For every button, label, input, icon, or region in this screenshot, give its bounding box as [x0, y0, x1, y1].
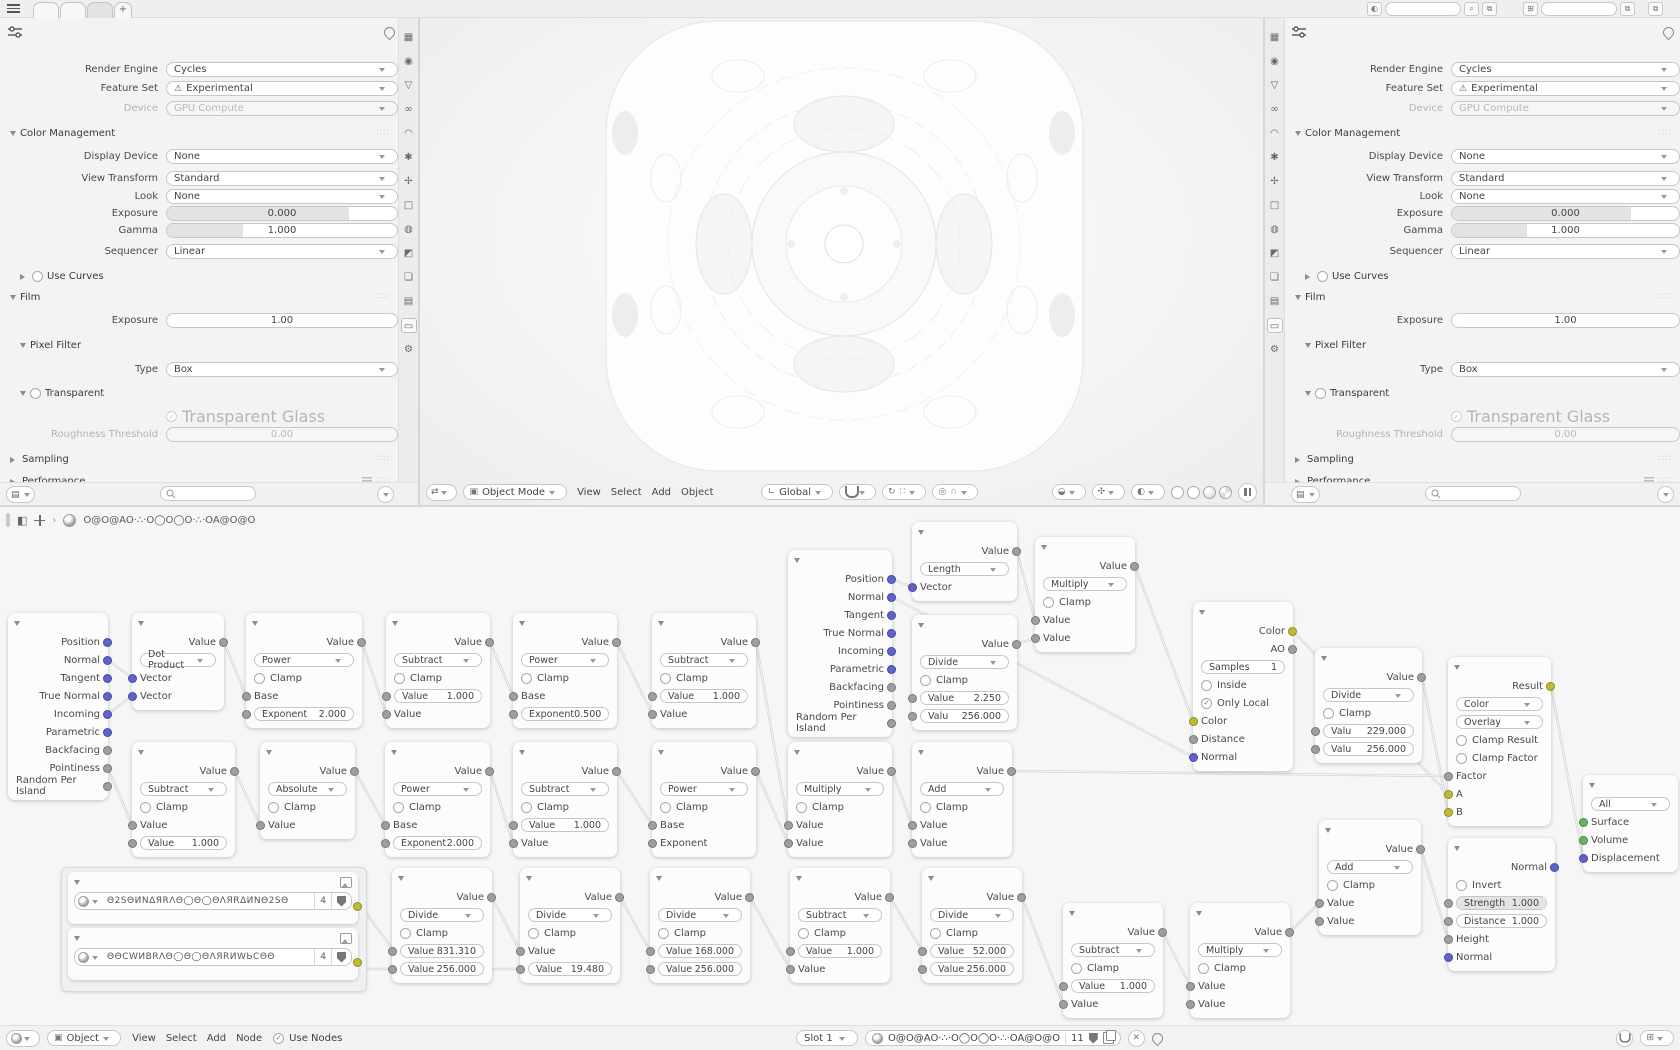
node-vector-math-length[interactable]: ValueLengthVector [912, 522, 1017, 601]
number-field[interactable]: Value256.000 [930, 962, 1014, 976]
socket[interactable] [1550, 863, 1559, 872]
dropdown-view-transform[interactable]: Standard [166, 171, 398, 186]
collapse-icon[interactable] [138, 750, 144, 758]
node-math-divide-3[interactable]: ValueDivideClampValue831.310Value256.000 [392, 868, 492, 983]
orientation-dropdown[interactable]: ∟Global [761, 484, 833, 500]
node-math-add-2[interactable]: ValueAddClampValueValue [1319, 820, 1421, 935]
checkbox-circle[interactable] [660, 673, 671, 684]
select-box-icon[interactable]: ◧ [17, 514, 27, 527]
value-field-exposure[interactable]: 0.000 [1451, 206, 1680, 221]
grid-small-icon[interactable]: ⊞ [1523, 2, 1538, 16]
socket[interactable] [1158, 928, 1167, 937]
socket[interactable] [103, 710, 112, 719]
transform-pivot-group[interactable]: ↻∷ [882, 484, 926, 500]
tab-modifiers[interactable]: ✢ [401, 174, 417, 189]
shader-node-editor[interactable]: PositionNormalTangentTrue NormalIncoming… [0, 507, 1680, 1050]
socket[interactable] [1416, 845, 1425, 854]
copy-small-icon-2[interactable]: ⧉ [1620, 2, 1635, 16]
socket[interactable] [786, 965, 795, 974]
socket[interactable] [382, 710, 391, 719]
tab-tool[interactable]: ⚙ [401, 342, 417, 357]
tab-render[interactable]: ▭ [401, 318, 417, 333]
section-header-film[interactable]: Film [1295, 292, 1325, 303]
collapse-icon[interactable] [1041, 545, 1047, 553]
socket[interactable] [887, 665, 896, 674]
checkbox-circle[interactable] [1071, 963, 1082, 974]
checkbox-circle[interactable] [1456, 735, 1467, 746]
tab-object-data[interactable]: ▽ [401, 78, 417, 93]
panel-handle[interactable] [6, 513, 10, 527]
collapse-icon[interactable] [918, 750, 924, 758]
checkbox-transparent-glass[interactable]: ✓Transparent Glass [166, 409, 398, 424]
checkbox-circle[interactable] [1327, 880, 1338, 891]
socket[interactable] [784, 839, 793, 848]
collapse-icon[interactable] [1321, 656, 1327, 664]
collapse-icon[interactable] [14, 621, 20, 629]
grip-dots-icon[interactable]: ∷∷ [1659, 454, 1672, 464]
image-user-count[interactable]: 4 [314, 893, 331, 909]
socket[interactable] [103, 746, 112, 755]
socket[interactable] [887, 767, 896, 776]
tab-world[interactable]: ◍ [401, 222, 417, 237]
collapse-icon[interactable] [519, 750, 525, 758]
socket[interactable] [1579, 854, 1588, 863]
node-header[interactable] [385, 742, 490, 762]
node-header[interactable] [513, 613, 617, 633]
dropdown-subtract[interactable]: Subtract [798, 908, 882, 922]
editor-type-button[interactable]: ⇄ [426, 484, 457, 501]
section-header-color-management[interactable]: Color Management [10, 128, 115, 139]
node-header[interactable] [8, 613, 108, 633]
value-field-gamma[interactable]: 1.000 [166, 223, 398, 238]
grip-dots-icon[interactable]: ∷∷ [1659, 292, 1672, 302]
dropdown-look[interactable]: None [166, 189, 398, 204]
node-header[interactable] [1315, 648, 1422, 668]
dropdown-subtract[interactable]: Subtract [140, 782, 227, 796]
collapse-icon[interactable] [918, 530, 924, 538]
socket[interactable] [381, 839, 390, 848]
checkbox-circle[interactable] [1456, 753, 1467, 764]
duplicate-icon[interactable]: ⧉ [1648, 2, 1663, 16]
tab-object[interactable]: □ [401, 198, 417, 213]
node-math-power-1[interactable]: ValuePowerClampBaseExponent2.000 [246, 613, 362, 728]
checkbox-circle[interactable] [930, 928, 941, 939]
dropdown-display-device[interactable]: None [166, 149, 398, 164]
number-field[interactable]: Value256.000 [400, 962, 484, 976]
collapse-icon[interactable] [918, 623, 924, 631]
socket[interactable] [516, 965, 525, 974]
app-menu-icon[interactable] [7, 4, 20, 13]
shading-material[interactable] [1203, 486, 1216, 499]
socket[interactable] [485, 767, 494, 776]
fake-user-icon[interactable] [1089, 1033, 1098, 1044]
section-checkbox[interactable] [30, 388, 41, 399]
node-header[interactable] [1448, 838, 1555, 858]
socket[interactable] [1059, 982, 1068, 991]
image-user-count[interactable]: 4 [314, 949, 331, 965]
section-checkbox[interactable] [1317, 271, 1328, 282]
socket[interactable] [885, 893, 894, 902]
dropdown-view-transform[interactable]: Standard [1451, 171, 1680, 186]
socket[interactable] [485, 638, 494, 647]
shading-wireframe[interactable] [1171, 486, 1184, 499]
editor-type-button[interactable] [6, 1030, 40, 1047]
node-vector-math-dot[interactable]: ValueDot ProductVectorVector [132, 613, 224, 710]
tab-material[interactable]: ◉ [1267, 54, 1283, 69]
dropdown-multiply[interactable]: Multiply [1198, 943, 1282, 957]
menu-object[interactable]: Object [677, 487, 718, 498]
collapse-icon[interactable] [928, 876, 934, 884]
node-header[interactable] [788, 742, 892, 762]
dropdown-power[interactable]: Power [393, 782, 482, 796]
number-field[interactable]: Value19.480 [528, 962, 612, 976]
titlebar-input-2[interactable] [1541, 2, 1617, 16]
checkbox-circle[interactable] [1456, 880, 1467, 891]
section-header-film[interactable]: Film [10, 292, 40, 303]
use-nodes-checkbox[interactable]: ✓Use Nodes [273, 1033, 342, 1044]
socket[interactable] [242, 710, 251, 719]
node-header[interactable] [1063, 903, 1163, 923]
menu-add[interactable]: Add [648, 487, 675, 498]
socket[interactable] [1189, 717, 1198, 726]
dropdown-divide[interactable]: Divide [528, 908, 612, 922]
tab-texture[interactable]: ▦ [401, 30, 417, 45]
number-field[interactable]: Value1.000 [140, 836, 227, 850]
socket[interactable] [1444, 953, 1453, 962]
number-field[interactable]: Exponent2.000 [254, 707, 354, 721]
tab-render[interactable]: ▭ [1267, 318, 1283, 333]
node-math-subtract-1[interactable]: ValueSubtractClampValue1.000Value [386, 613, 490, 728]
search-small-icon[interactable]: ⌕ [1464, 2, 1479, 16]
checkbox-circle[interactable] [528, 928, 539, 939]
dropdown-add[interactable]: Add [1327, 860, 1413, 874]
window-tab-3[interactable] [87, 2, 113, 18]
tab-particles[interactable]: ✱ [1267, 150, 1283, 165]
node-mix-color[interactable]: ResultColorOverlayClamp ResultClamp Fact… [1448, 657, 1551, 826]
user-count[interactable]: 11 [1065, 1033, 1084, 1044]
node-geometry-2[interactable]: PositionNormalTangentTrue NormalIncoming… [788, 550, 892, 737]
fake-user-icon[interactable] [331, 949, 351, 965]
collapse-icon[interactable] [658, 621, 664, 629]
number-field[interactable]: Value831.310 [400, 944, 484, 958]
checkbox-circle[interactable] [394, 673, 405, 684]
window-tab-1[interactable] [33, 2, 59, 18]
socket[interactable] [103, 764, 112, 773]
socket[interactable] [908, 583, 917, 592]
socket[interactable] [219, 638, 228, 647]
node-header[interactable] [1193, 602, 1293, 622]
number-field[interactable]: Valu256.000 [1323, 742, 1414, 756]
menu-add[interactable]: Add [203, 1033, 230, 1044]
value-field-exposure[interactable]: 1.00 [166, 313, 398, 328]
checkbox-circle[interactable] [796, 802, 807, 813]
dropdown-device[interactable]: GPU Compute [1451, 101, 1680, 116]
node-header[interactable] [1583, 775, 1678, 795]
checkbox-circle[interactable] [521, 802, 532, 813]
socket[interactable] [128, 692, 137, 701]
dropdown-feature-set[interactable]: ⚠Experimental [1451, 81, 1680, 96]
proportional-edit-group[interactable]: ◎∩ [932, 484, 977, 500]
socket[interactable] [128, 821, 137, 830]
collapse-icon[interactable] [1199, 610, 1205, 618]
socket[interactable] [786, 947, 795, 956]
checkbox-circle[interactable] [1323, 708, 1334, 719]
node-header[interactable] [912, 742, 1012, 762]
dropdown-dot-product[interactable]: Dot Product [140, 653, 216, 667]
checkbox-circle[interactable] [268, 802, 279, 813]
collapse-icon[interactable] [519, 621, 525, 629]
socket[interactable] [350, 767, 359, 776]
checkbox-circle[interactable] [1043, 597, 1054, 608]
socket[interactable] [1444, 808, 1453, 817]
socket[interactable] [256, 821, 265, 830]
tab-material[interactable]: ◉ [401, 54, 417, 69]
socket[interactable] [353, 958, 362, 967]
section-header-sampling[interactable]: Sampling [10, 454, 69, 465]
mode-dropdown[interactable]: ▣Object Mode [463, 484, 568, 500]
socket[interactable] [1311, 745, 1320, 754]
node-math-divide-2[interactable]: ValueDivideClampValu229.000Valu256.000 [1315, 648, 1422, 763]
socket[interactable] [887, 683, 896, 692]
socket[interactable] [908, 712, 917, 721]
dropdown-multiply[interactable]: Multiply [796, 782, 884, 796]
checkbox-transparent-glass[interactable]: ✓Transparent Glass [1451, 409, 1680, 424]
overlays-dropdown[interactable]: ⊞ [1640, 1030, 1674, 1046]
node-header[interactable] [652, 742, 756, 762]
socket[interactable] [103, 728, 112, 737]
slot-dropdown[interactable]: Slot 1 [796, 1030, 858, 1046]
socket[interactable] [1186, 982, 1195, 991]
socket[interactable] [509, 692, 518, 701]
dropdown-overlay[interactable]: Overlay [1456, 715, 1543, 729]
value-field-roughness-threshold[interactable]: 0.00 [1451, 427, 1680, 442]
node-math-divide-6[interactable]: ValueDivideClampValue52.000Value256.000 [922, 868, 1022, 983]
socket[interactable] [1189, 735, 1198, 744]
shading-solid[interactable] [1187, 486, 1200, 499]
socket[interactable] [887, 647, 896, 656]
visibility-group[interactable]: ◒ [1052, 484, 1086, 500]
editor-type-button[interactable]: ▤ [6, 486, 35, 503]
checkbox-circle[interactable] [798, 928, 809, 939]
socket[interactable] [612, 638, 621, 647]
socket[interactable] [1031, 616, 1040, 625]
node-header[interactable] [520, 868, 620, 888]
node-math-divide-1[interactable]: ValueDivideClampValue2.250Valu256.000 [912, 615, 1017, 730]
socket[interactable] [887, 593, 896, 602]
material-datablock[interactable]: O@O@AO·∴·O◯O◯O·∴·OA@O@O 11 [865, 1030, 1121, 1046]
node-header[interactable] [246, 613, 362, 633]
collapse-icon[interactable] [658, 750, 664, 758]
filter-dropdown[interactable] [377, 486, 394, 503]
collapse-icon[interactable] [1454, 665, 1460, 673]
dropdown-divide[interactable]: Divide [400, 908, 484, 922]
dropdown-divide[interactable]: Divide [1323, 688, 1414, 702]
node-math-divide-5[interactable]: ValueDivideClampValue168.000Value256.000 [650, 868, 750, 983]
node-header[interactable] [1190, 903, 1290, 923]
image-texture-node-2[interactable]: ΘΘCWИBRΛΘ◯Θ◯ΘΛЯRИWЬCΘΘ4 [68, 928, 358, 980]
number-field[interactable]: Exponent0.500 [521, 707, 609, 721]
socket[interactable] [128, 839, 137, 848]
copy-icon[interactable] [1103, 1032, 1114, 1044]
titlebar-input-1[interactable] [1385, 2, 1461, 16]
number-field[interactable]: Value1.000 [660, 689, 748, 703]
collapse-icon[interactable] [266, 750, 272, 758]
socket[interactable] [887, 719, 896, 728]
tab-output[interactable]: ▤ [1267, 294, 1283, 309]
socket[interactable] [1444, 935, 1453, 944]
node-header[interactable] [132, 613, 224, 633]
menu-select[interactable]: Select [162, 1033, 201, 1044]
socket[interactable] [745, 893, 754, 902]
checkbox-circle[interactable] [1201, 680, 1212, 691]
collapse-icon[interactable] [391, 750, 397, 758]
image-browse-icon[interactable] [78, 896, 89, 907]
node-header[interactable] [788, 550, 892, 570]
number-field[interactable]: Value256.000 [658, 962, 742, 976]
collapse-icon[interactable] [398, 876, 404, 884]
image-browse-icon[interactable] [78, 952, 89, 963]
socket[interactable] [509, 839, 518, 848]
section-header-use-curves[interactable]: Use Curves [1305, 271, 1389, 282]
node-header[interactable] [68, 872, 358, 892]
overlays-group[interactable]: ◐ [1131, 484, 1165, 500]
node-header[interactable] [1319, 820, 1421, 840]
socket[interactable] [918, 965, 927, 974]
socket[interactable] [1031, 634, 1040, 643]
fake-user-icon[interactable] [331, 893, 351, 909]
node-header[interactable] [912, 615, 1017, 635]
dropdown-multiply[interactable]: Multiply [1043, 577, 1127, 591]
socket[interactable] [1579, 818, 1588, 827]
node-math-subtract-4[interactable]: ValueSubtractClampValue1.000Value [513, 742, 617, 857]
dropdown-subtract[interactable]: Subtract [521, 782, 609, 796]
socket[interactable] [908, 839, 917, 848]
node-math-subtract-3[interactable]: ValueSubtractClampValueValue1.000 [132, 742, 235, 857]
socket[interactable] [1186, 1000, 1195, 1009]
collapse-icon[interactable] [392, 621, 398, 629]
gizmo-group[interactable]: ✣ [1092, 484, 1126, 500]
collapse-icon[interactable] [526, 876, 532, 884]
dropdown-look[interactable]: None [1451, 189, 1680, 204]
search-input[interactable] [160, 486, 256, 501]
node-math-absolute[interactable]: ValueAbsoluteClampValue [260, 742, 355, 839]
socket[interactable] [615, 893, 624, 902]
filter-dropdown[interactable] [1657, 486, 1674, 503]
tab-output[interactable]: ▤ [401, 294, 417, 309]
tab-particles[interactable]: ✱ [401, 150, 417, 165]
tab-world[interactable]: ◍ [1267, 222, 1283, 237]
image-texture-node-1[interactable]: Θ2SΘИNΔЯRΛΘ◯Θ◯ΘΛЯRΔИNΘ2SΘ4 [68, 872, 358, 924]
node-math-divide-4[interactable]: ValueDivideClampValueValue19.480 [520, 868, 620, 983]
node-header[interactable] [392, 868, 492, 888]
dropdown-render-engine[interactable]: Cycles [166, 62, 398, 77]
value-field-roughness-threshold[interactable]: 0.00 [166, 427, 398, 442]
menu-select[interactable]: Select [607, 487, 646, 498]
socket[interactable] [103, 656, 112, 665]
socket[interactable] [230, 767, 239, 776]
menu-view[interactable]: View [573, 487, 605, 498]
socket[interactable] [887, 629, 896, 638]
editor-type-button[interactable]: ▤ [1291, 486, 1320, 503]
socket[interactable] [388, 947, 397, 956]
value-field-gamma[interactable]: 1.000 [1451, 223, 1680, 238]
checkbox-circle[interactable] [254, 673, 265, 684]
node-header[interactable] [922, 868, 1022, 888]
socket[interactable] [1315, 899, 1324, 908]
checkbox-circle[interactable] [660, 802, 671, 813]
socket[interactable] [487, 893, 496, 902]
socket[interactable] [648, 710, 657, 719]
dropdown-length[interactable]: Length [920, 562, 1009, 576]
socket[interactable] [1444, 917, 1453, 926]
socket[interactable] [1417, 673, 1426, 682]
shader-type-dropdown[interactable]: ▣Object [47, 1030, 121, 1046]
collapse-icon[interactable] [796, 876, 802, 884]
unlink-button[interactable]: ✕ [1128, 1030, 1145, 1047]
section-checkbox[interactable] [32, 271, 43, 282]
node-header[interactable] [260, 742, 355, 762]
number-field[interactable]: Exponent2.000 [393, 836, 482, 850]
dropdown-render-engine[interactable]: Cycles [1451, 62, 1680, 77]
checkbox-circle[interactable]: ✓ [1451, 411, 1462, 422]
node-math-power-4[interactable]: ValuePowerClampBaseExponent [652, 742, 756, 857]
image-datablock[interactable]: Θ2SΘИNΔЯRΛΘ◯Θ◯ΘΛЯRΔИNΘ2SΘ4 [74, 892, 352, 910]
dropdown-feature-set[interactable]: ⚠Experimental [166, 81, 398, 96]
socket[interactable] [1315, 917, 1324, 926]
section-header-pixel-filter[interactable]: Pixel Filter [20, 340, 81, 351]
node-math-power-3[interactable]: ValuePowerClampBaseExponent2.000 [385, 742, 490, 857]
number-field[interactable]: Value2.250 [920, 691, 1009, 705]
socket[interactable] [1189, 753, 1198, 762]
collapse-icon[interactable] [138, 621, 144, 629]
dropdown-all[interactable]: All [1591, 797, 1670, 811]
node-geometry-1[interactable]: PositionNormalTangentTrue NormalIncoming… [8, 613, 108, 800]
image-datablock[interactable]: ΘΘCWИBRΛΘ◯Θ◯ΘΛЯRИWЬCΘΘ4 [74, 948, 352, 966]
dropdown-type[interactable]: Box [166, 362, 398, 377]
collapse-icon[interactable] [74, 880, 80, 888]
node-math-subtract-2[interactable]: ValueSubtractClampValue1.000Value [652, 613, 756, 728]
number-field[interactable]: Distance1.000 [1456, 914, 1547, 928]
node-header[interactable] [1448, 657, 1551, 677]
snap-toggle[interactable] [1616, 1030, 1633, 1047]
socket[interactable] [908, 694, 917, 703]
node-header[interactable] [652, 613, 756, 633]
node-header[interactable] [650, 868, 750, 888]
window-tab-2[interactable] [60, 2, 86, 18]
socket[interactable] [751, 638, 760, 647]
tab-constraints[interactable]: ∞ [401, 102, 417, 117]
socket[interactable] [1288, 645, 1297, 654]
copy-small-icon[interactable]: ⧉ [1482, 2, 1497, 16]
socket[interactable] [1017, 893, 1026, 902]
collapse-icon[interactable] [252, 621, 258, 629]
number-field[interactable]: Samples1 [1201, 660, 1285, 674]
socket[interactable] [1444, 899, 1453, 908]
node-math-subtract-6[interactable]: ValueSubtractClampValue1.000Value [1063, 903, 1163, 1018]
tab-texture[interactable]: ▦ [1267, 30, 1283, 45]
number-field[interactable]: Value1.000 [394, 689, 482, 703]
dropdown-type[interactable]: Box [1451, 362, 1680, 377]
number-field[interactable]: Value1.000 [798, 944, 882, 958]
checkbox-circle[interactable] [920, 675, 931, 686]
socket[interactable] [509, 821, 518, 830]
tab-tool[interactable]: ⚙ [1267, 342, 1283, 357]
socket[interactable] [887, 611, 896, 620]
node-math-multiply-1[interactable]: ValueMultiplyClampValueValue [1035, 537, 1135, 652]
dropdown-subtract[interactable]: Subtract [660, 653, 748, 667]
socket[interactable] [242, 692, 251, 701]
grip-dots-icon[interactable]: ∷∷ [377, 454, 390, 464]
